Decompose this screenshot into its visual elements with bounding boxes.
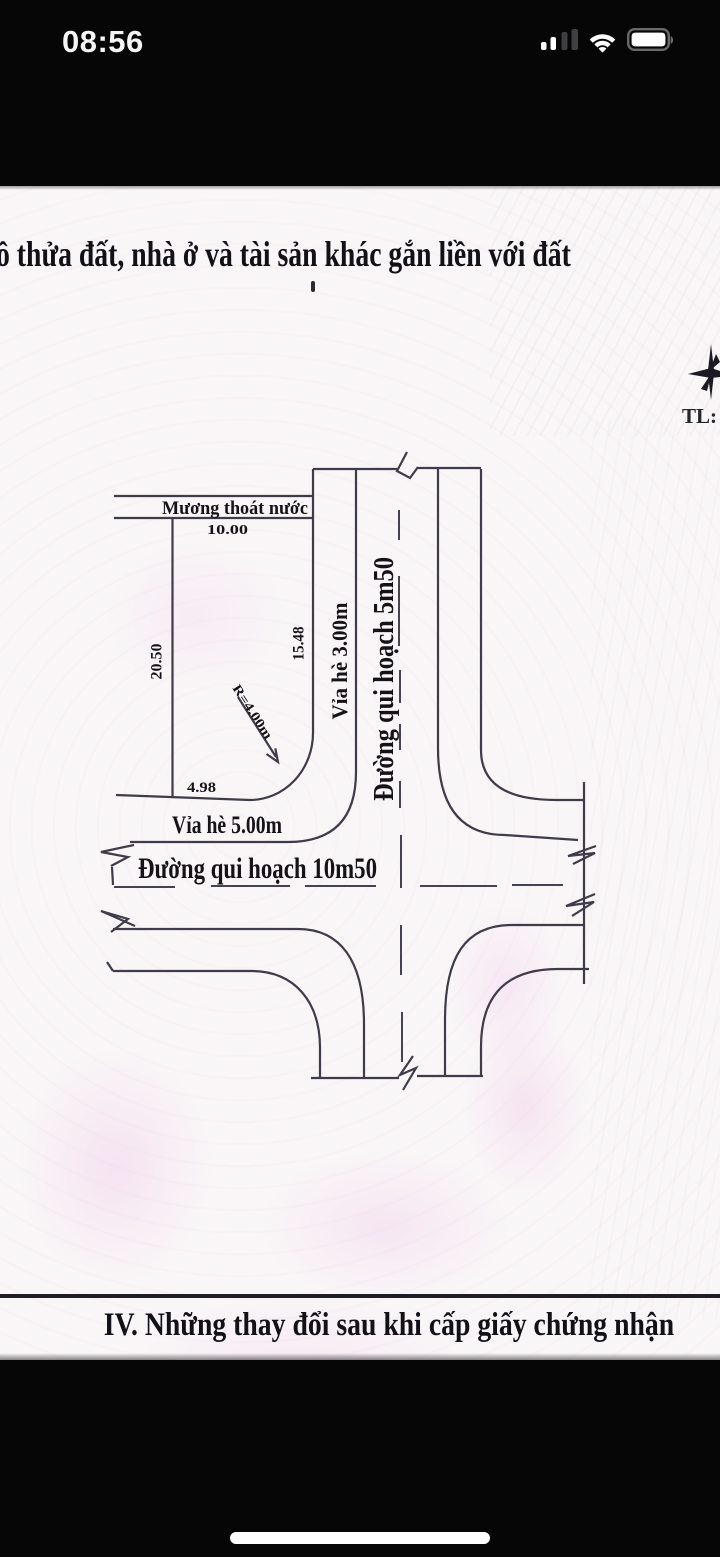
svg-text:15.48: 15.48: [291, 627, 308, 661]
svg-text:Mương thoát nước: Mương thoát nước: [162, 498, 308, 519]
svg-text:10.00: 10.00: [207, 523, 248, 538]
svg-text:Vỉa hè 5.00m: Vỉa hè 5.00m: [172, 812, 282, 839]
svg-text:4.98: 4.98: [187, 780, 216, 796]
svg-text:Đường qui hoạch 5m50: Đường qui hoạch 5m50: [368, 557, 400, 801]
svg-text:R=4.00m: R=4.00m: [230, 681, 276, 741]
svg-text:20.50: 20.50: [149, 644, 166, 680]
svg-text:Vỉa hè 3.00m: Vỉa hè 3.00m: [327, 603, 352, 720]
svg-text:Đường qui hoạch 10m50: Đường qui hoạch 10m50: [138, 852, 377, 885]
